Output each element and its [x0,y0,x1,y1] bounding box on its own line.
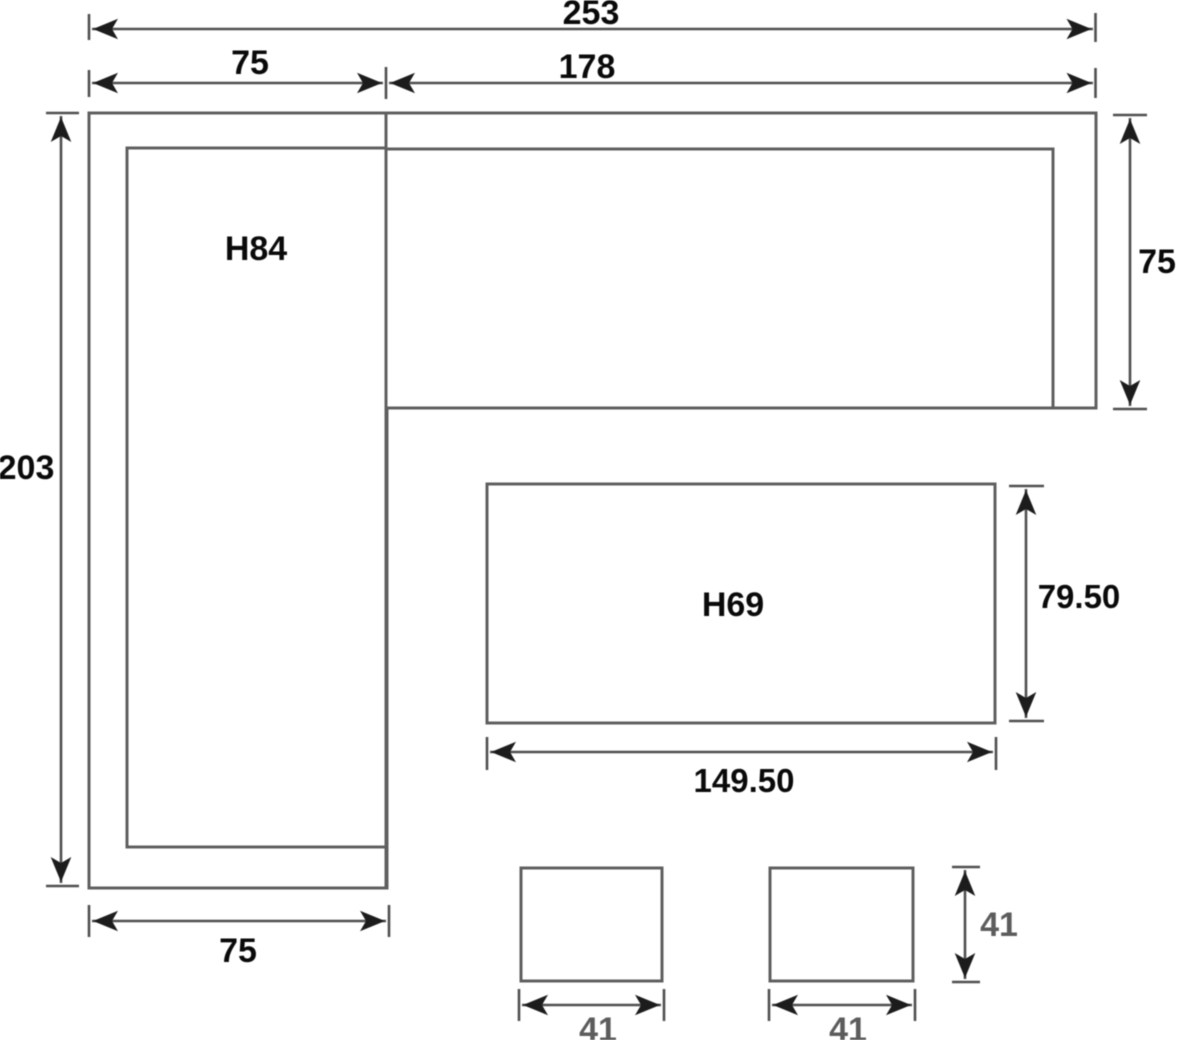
svg-text:75: 75 [231,44,269,82]
svg-text:253: 253 [563,0,620,32]
svg-text:41: 41 [829,1011,867,1040]
svg-text:178: 178 [559,48,616,86]
svg-text:H84: H84 [225,230,287,268]
svg-text:75: 75 [1138,243,1176,281]
svg-text:H69: H69 [702,586,764,624]
svg-text:41: 41 [579,1011,617,1040]
svg-text:149.50: 149.50 [694,762,795,799]
svg-text:41: 41 [980,906,1018,944]
svg-text:203: 203 [0,449,54,487]
svg-text:79.50: 79.50 [1038,578,1121,615]
svg-text:75: 75 [219,932,257,970]
